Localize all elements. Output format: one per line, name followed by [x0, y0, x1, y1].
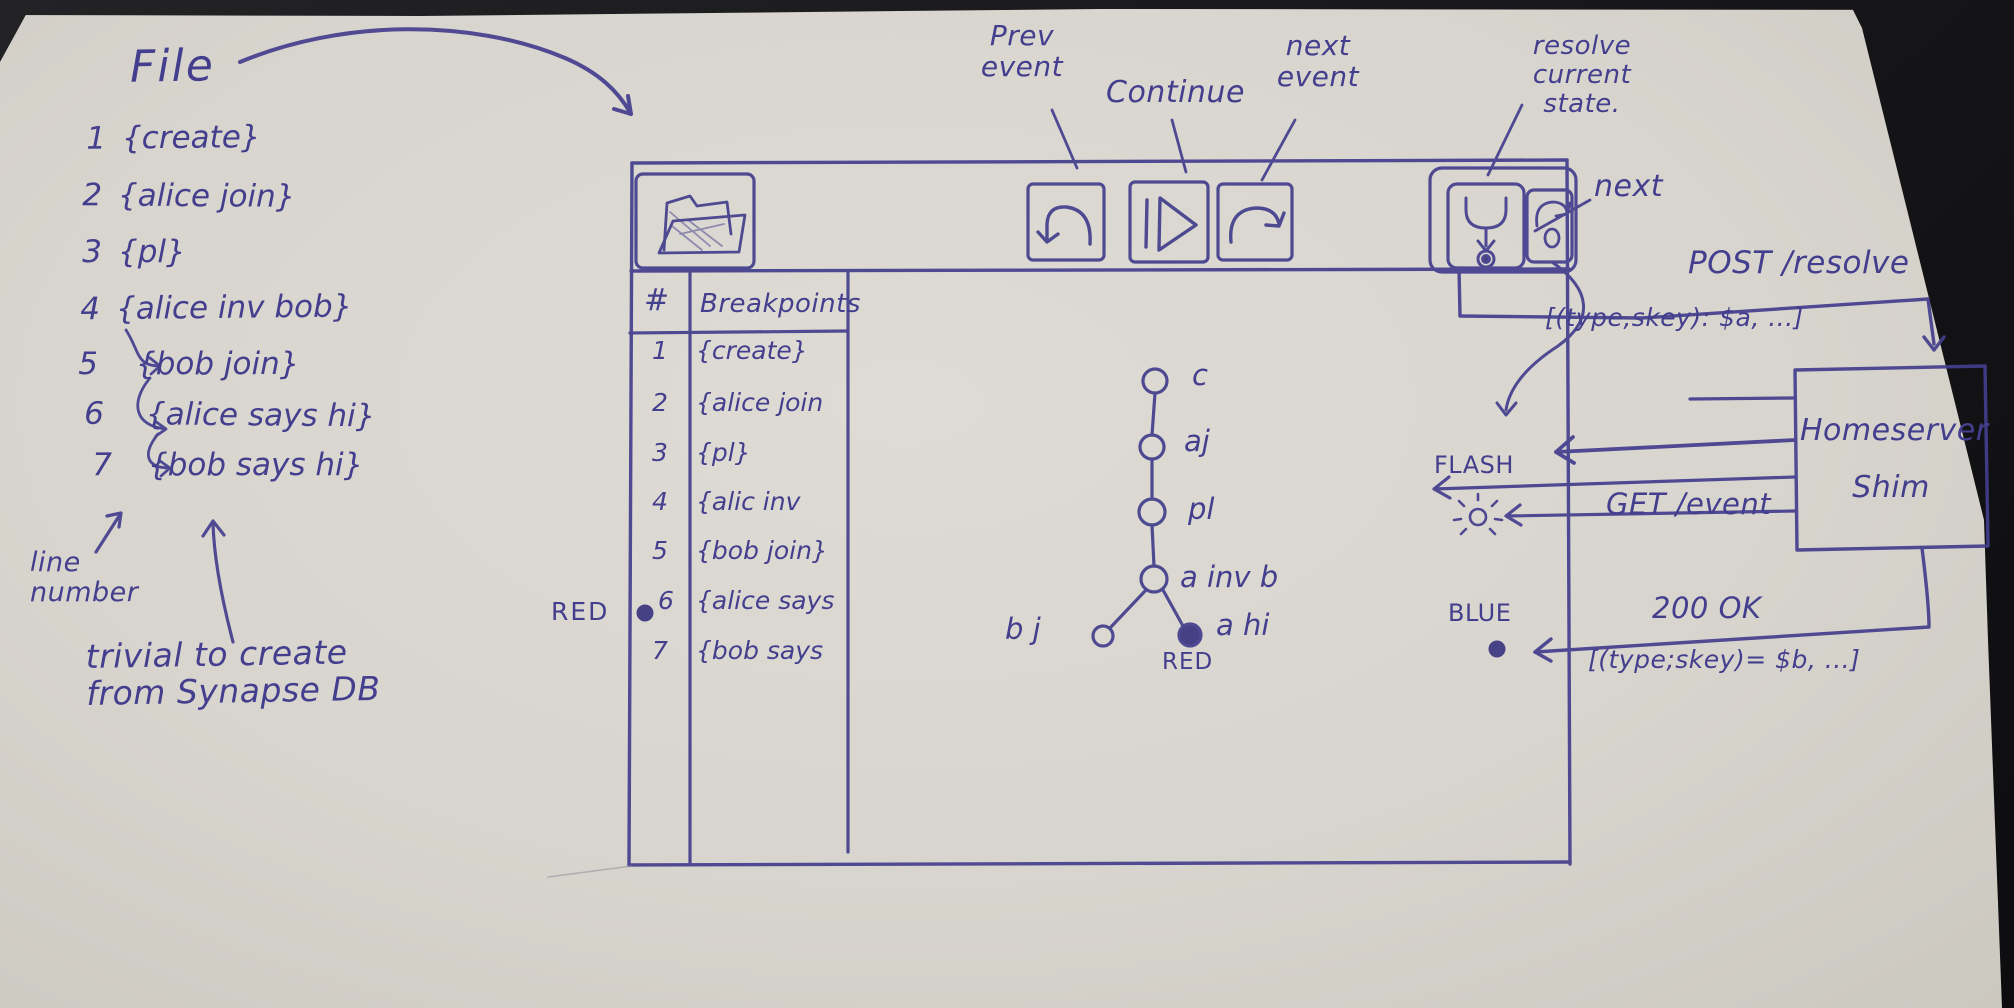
row-number: 1: [644, 336, 676, 365]
line-number: 7: [76, 447, 112, 483]
post-payload-label: [(type,skey): $a, ...]: [1545, 304, 1804, 332]
line-number-note: line number: [30, 548, 140, 608]
line-number: 1: [70, 121, 106, 157]
blue-note: BLUE: [1448, 600, 1511, 627]
row-event: {create}: [696, 336, 846, 365]
row-event: {alice says: [696, 586, 846, 615]
file-event-row: 7{bob says hi}: [76, 447, 363, 483]
row-number: 6: [650, 586, 682, 615]
event-text: {alice join}: [118, 178, 296, 215]
line-number: 3: [66, 234, 102, 270]
line-number: 4: [64, 291, 100, 327]
continue-label: Continue: [1106, 76, 1245, 110]
prev-event-label: Prev event: [962, 20, 1082, 83]
file-event-row: 2{alice join}: [66, 177, 296, 215]
event-text: {pl}: [118, 234, 186, 270]
response-payload-label: [(type;skey)= $b, ...]: [1588, 646, 1860, 674]
dag-label-a-hi: a hi: [1216, 608, 1269, 642]
row-event: {bob says: [696, 636, 846, 665]
row-number: 5: [644, 536, 676, 565]
file-menu-title: File: [130, 41, 216, 92]
row-number: 7: [644, 636, 676, 665]
table-header-breakpoints: Breakpoints: [700, 290, 861, 319]
row-event: {pl}: [696, 438, 846, 467]
resolve-current-state-label: resolve current state.: [1512, 32, 1652, 119]
file-event-row: 3{pl}: [66, 234, 186, 270]
event-text: {bob says hi}: [148, 447, 363, 483]
row-event: {alice join: [696, 388, 846, 417]
red-dag-note: RED: [1162, 650, 1213, 676]
dag-label-aj: aj: [1184, 424, 1210, 458]
dag-label-b-j: b j: [1005, 612, 1041, 646]
line-number: 2: [66, 177, 102, 213]
row-event: {alic inv: [696, 487, 846, 516]
file-event-row: 5{bob join}: [62, 346, 299, 382]
row-number: 4: [644, 487, 676, 516]
dag-label-pl: pl: [1188, 492, 1214, 526]
next-label: next: [1594, 170, 1663, 204]
get-event-label: GET /event: [1606, 488, 1771, 520]
file-event-row: 6{alice says hi}: [68, 396, 376, 435]
sketch-photo: File 1{create} 2{alice join} 3{pl} 4{ali…: [0, 0, 2014, 1008]
row-number: 3: [644, 438, 676, 467]
row-number: 2: [644, 388, 676, 417]
event-text: {create}: [122, 119, 261, 156]
file-event-row: 1{create}: [70, 119, 261, 157]
response-status-label: 200 OK: [1652, 592, 1761, 624]
dag-label-c: c: [1192, 358, 1208, 392]
line-number: 5: [62, 346, 98, 382]
event-text: {alice inv bob}: [116, 288, 353, 326]
line-number: 6: [68, 396, 104, 432]
homeserver-shim-label: Homeserver Shim: [1800, 402, 1982, 516]
next-event-label: next event: [1258, 30, 1378, 93]
post-resolve-label: POST /resolve: [1688, 246, 1909, 281]
trivial-note: trivial to create from Synapse DB: [85, 633, 426, 713]
event-text: {bob join}: [136, 346, 299, 382]
event-text: {alice says hi}: [146, 396, 376, 434]
file-event-row: 4{alice inv bob}: [64, 288, 353, 327]
table-header-number: #: [644, 284, 670, 318]
flash-note: FLASH: [1434, 452, 1514, 479]
red-breakpoint-note: RED: [551, 598, 609, 626]
dag-label-a-inv-b: a inv b: [1180, 560, 1278, 594]
row-event: {bob join}: [696, 536, 846, 565]
